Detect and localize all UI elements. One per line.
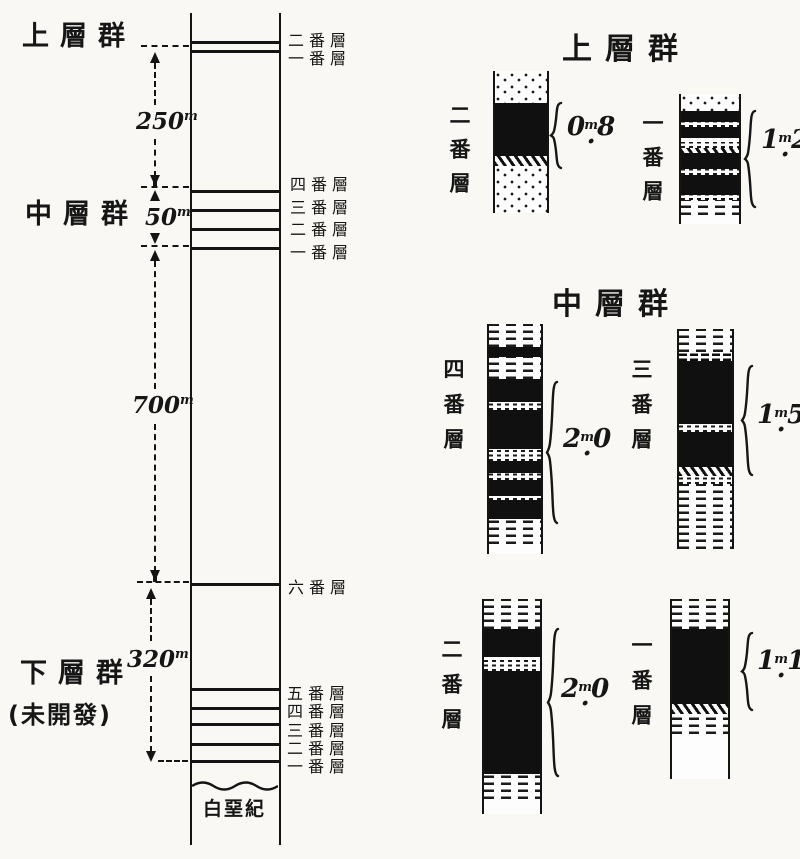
- seam-line: [192, 688, 279, 691]
- dimension-line: [150, 676, 152, 752]
- seam-line: [192, 707, 279, 710]
- lith-band-coal: [679, 432, 732, 467]
- seam-label-mid-1: 一番層: [290, 239, 353, 263]
- lith-band-sand: [681, 94, 739, 111]
- lith-band-shaledash: [672, 599, 728, 629]
- lith-band-speck: [679, 424, 732, 432]
- dimension-tick: [153, 177, 157, 187]
- lith-band-coal: [679, 361, 732, 424]
- boundary-dash: [158, 760, 188, 762]
- lith-band-white: [489, 544, 541, 554]
- seam-line: [192, 50, 279, 53]
- boundary-dash: [141, 186, 189, 188]
- dimension-arrow-down: [146, 751, 156, 762]
- thickness-middle-4: 2m.0: [563, 426, 611, 452]
- detail-column-upper-1: [679, 94, 741, 224]
- lith-band-coal: [484, 671, 540, 774]
- lith-band-hatch: [679, 467, 732, 476]
- dimension-line: [154, 424, 156, 572]
- lith-band-shaledash: [489, 357, 541, 379]
- lith-band-speckdark: [679, 352, 732, 361]
- thickness-middle-2: 2m.0: [561, 676, 609, 702]
- lith-band-shaledash: [672, 714, 728, 734]
- thickness-upper-2: 0m.8: [567, 114, 615, 140]
- lith-band-coal: [489, 379, 541, 402]
- detail-column-middle-3: [677, 329, 734, 549]
- dimension-arrow-down: [150, 233, 160, 244]
- brace-upper-1: [743, 110, 758, 208]
- lith-band-speck: [679, 476, 732, 484]
- dimension-tick: [153, 572, 157, 582]
- seam-label-low-1: 一番層: [287, 753, 350, 777]
- master-column: [190, 13, 281, 845]
- lith-band-shaledash: [681, 200, 739, 215]
- detail-label-upper-1: 一番層: [641, 112, 662, 214]
- dimension-line: [154, 139, 156, 177]
- boundary-dash: [141, 45, 189, 47]
- seam-label-six: 六番層: [288, 574, 351, 598]
- wavy-unconformity-line: [192, 778, 278, 792]
- seam-line: [192, 190, 279, 193]
- brace-middle-1: [740, 632, 755, 711]
- group-label-lower-note: (未開發): [8, 695, 112, 730]
- lith-band-speck: [489, 473, 541, 480]
- brace-upper-2: [549, 102, 564, 169]
- detail-label-middle-1: 一番層: [630, 634, 651, 739]
- seam-line: [192, 583, 279, 586]
- dimension-arrow-up: [150, 52, 160, 63]
- lith-band-coal: [489, 461, 541, 473]
- thickness-middle-3: 1m.5: [757, 402, 800, 428]
- lith-band-coal: [681, 153, 739, 169]
- measure-320m: 320m: [127, 646, 189, 673]
- detail-column-middle-2: [482, 599, 542, 814]
- lith-band-hatch: [672, 704, 728, 714]
- detail-column-upper-2: [493, 71, 549, 213]
- lith-band-hatch: [495, 156, 547, 166]
- detail-label-upper-2: 二番層: [448, 104, 469, 206]
- measure-700m: 700m: [132, 392, 194, 419]
- lith-band-coal: [489, 347, 541, 357]
- lith-band-speck: [489, 402, 541, 410]
- lith-band-coal: [672, 629, 728, 704]
- seam-line: [192, 209, 279, 212]
- thickness-upper-1: 1m.2: [761, 127, 800, 153]
- brace-middle-4: [545, 381, 560, 524]
- seam-line: [192, 247, 279, 250]
- lith-band-shaledash: [679, 329, 732, 352]
- lith-band-coal: [681, 111, 739, 122]
- lith-band-speck: [484, 657, 540, 671]
- boundary-dash: [137, 581, 189, 583]
- lith-band-coal: [484, 629, 540, 657]
- dimension-arrow-up: [146, 588, 156, 599]
- lith-band-sand: [495, 166, 547, 213]
- dimension-line: [154, 261, 156, 389]
- boundary-dash: [141, 245, 189, 247]
- seam-label-mid-4: 四番層: [290, 171, 353, 195]
- seam-line: [192, 760, 279, 763]
- seam-label-top-1: 一番層: [288, 45, 351, 69]
- lith-band-coal: [489, 500, 541, 519]
- seam-line: [192, 723, 279, 726]
- thickness-middle-1: 1m.1: [757, 648, 800, 674]
- seam-line: [192, 228, 279, 231]
- basement-label: 白堊紀: [203, 794, 266, 821]
- lith-band-coal: [489, 410, 541, 449]
- stratigraphic-diagram: 白堊紀 上層群 中層群 下層群 (未開發) 250m 50m 700m 320m…: [0, 0, 800, 859]
- lith-band-white: [484, 799, 540, 814]
- lith-band-shaledash: [489, 519, 541, 544]
- seam-label-mid-2: 二番層: [290, 216, 353, 240]
- lith-band-speck: [489, 449, 541, 461]
- lith-band-sand: [495, 71, 547, 103]
- measure-250m: 250m: [136, 108, 198, 135]
- group-label-lower: 下層群: [20, 651, 134, 690]
- lith-band-coal: [489, 480, 541, 496]
- section-title-middle: 中層群: [552, 279, 681, 323]
- seam-line: [192, 743, 279, 746]
- lith-band-coal: [681, 127, 739, 138]
- lith-band-shaledash: [679, 484, 732, 549]
- measure-50m: 50m: [145, 204, 191, 231]
- lith-band-shaledash: [484, 774, 540, 799]
- brace-middle-3: [740, 365, 755, 476]
- lith-band-shaledash: [489, 324, 541, 347]
- group-label-upper: 上層群: [22, 14, 136, 53]
- lith-band-coal: [495, 103, 547, 156]
- lith-band-shaledash: [484, 599, 540, 629]
- lith-band-white: [681, 215, 739, 224]
- lith-band-coal: [681, 175, 739, 195]
- group-label-middle: 中層群: [25, 192, 139, 231]
- seam-line: [192, 41, 279, 44]
- brace-middle-2: [546, 628, 561, 777]
- detail-column-middle-1: [670, 599, 730, 779]
- detail-label-middle-2: 二番層: [440, 638, 461, 743]
- dimension-line: [150, 599, 152, 641]
- dimension-arrow-up: [150, 250, 160, 261]
- seam-label-mid-3: 三番層: [290, 194, 353, 218]
- detail-label-middle-4: 四番層: [442, 358, 463, 463]
- dimension-line: [154, 63, 156, 105]
- dimension-arrow-up: [150, 190, 160, 201]
- lith-band-white: [672, 734, 728, 779]
- detail-column-middle-4: [487, 324, 543, 554]
- detail-label-middle-3: 三番層: [630, 358, 651, 463]
- section-title-upper: 上層群: [562, 24, 691, 68]
